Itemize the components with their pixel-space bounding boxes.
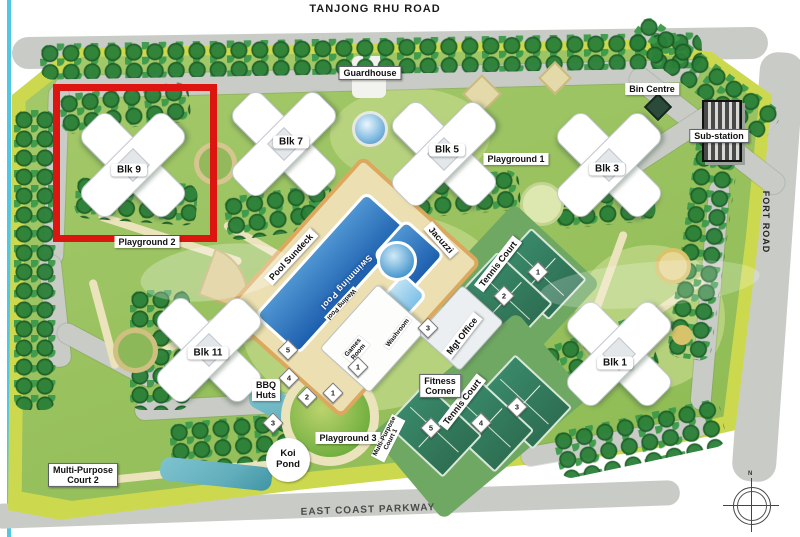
blk-11-label: Blk 11 [188, 347, 229, 360]
garden-circle [113, 328, 158, 373]
multi-purpose-court-2-label: Multi-PurposeCourt 2 [48, 463, 118, 487]
koi-pond-label: KoiPond [266, 438, 310, 482]
blk-5-label: Blk 5 [429, 144, 465, 157]
compass-north-label: N [748, 471, 752, 477]
garden-circle [672, 325, 692, 345]
fitness-corner-label: FitnessCorner [419, 374, 461, 398]
blk9-highlight-box [53, 84, 217, 242]
fountain-feature [352, 111, 388, 147]
compass-inner-ring [737, 491, 767, 521]
playground-2-label: Playground 2 [114, 236, 179, 248]
bin-centre-label: Bin Centre [625, 83, 679, 95]
guardhouse-label: Guardhouse [338, 66, 401, 80]
bbq-huts-label: BBQHuts [252, 379, 280, 401]
playground-1-label: Playground 1 [483, 153, 548, 165]
condo-site-map: Blk 9Blk 7Blk 5Blk 3Blk 1Blk 11Guardhous… [0, 0, 800, 537]
blk-1-label: Blk 1 [597, 357, 633, 370]
sub-station-label: Sub-station [689, 129, 749, 143]
tanjong-rhu-road-label: TANJONG RHU ROAD [309, 3, 440, 15]
blk-7-label: Blk 7 [273, 136, 309, 149]
jacuzzi-pool [377, 241, 417, 281]
tree-cluster [14, 110, 56, 410]
playground-3-label: Playground 3 [315, 432, 380, 444]
blk-3-label: Blk 3 [589, 163, 625, 176]
fort-road-label: FORT ROAD [761, 191, 771, 254]
garden-circle [655, 248, 691, 284]
